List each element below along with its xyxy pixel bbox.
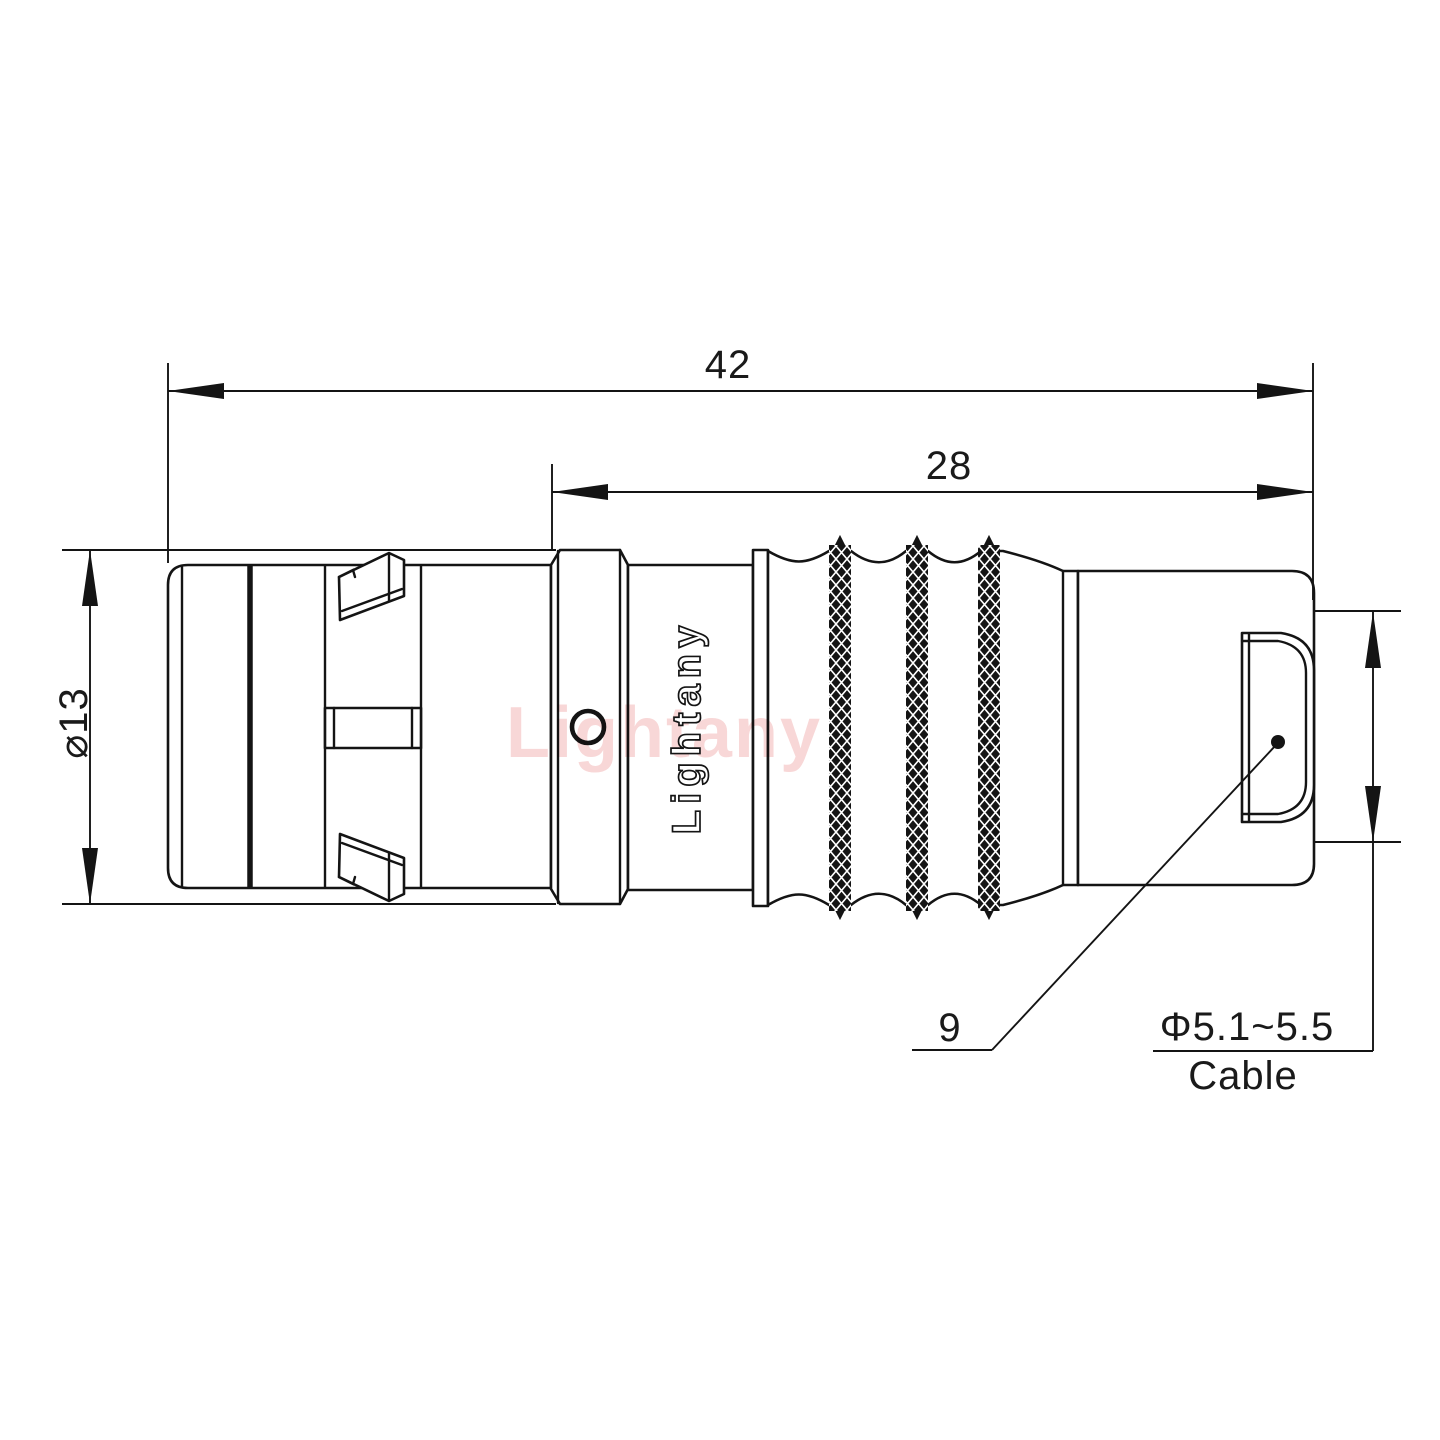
knurl-band [906, 545, 928, 911]
dim-value-9: 9 [938, 1006, 961, 1050]
arrowhead-top [82, 550, 98, 606]
dim-value-dia13: ⌀13 [52, 687, 96, 759]
arrowhead-right [1257, 383, 1313, 399]
knurl-band [829, 545, 851, 911]
arrowhead-left [552, 484, 608, 500]
body-logo: Lightany [665, 620, 709, 835]
knurl-band [978, 545, 1000, 911]
watermark: Lightany [506, 693, 822, 773]
latch-center-band [325, 708, 421, 748]
dim-value-28: 28 [926, 444, 973, 488]
cable-nut-section [1078, 571, 1314, 885]
dim-value-cable-dia: Φ5.1~5.5 [1160, 1005, 1334, 1049]
arrowhead-left [168, 383, 224, 399]
knurl-ring-1 [829, 536, 851, 919]
knurl-ring-2 [906, 536, 928, 919]
arrowhead-top [1365, 612, 1381, 668]
drawing-canvas: Lightany Lightany 42 28 ⌀13 Φ5.1~5.5 [0, 0, 1440, 1440]
dim-value-42: 42 [705, 343, 752, 387]
cable-label: Cable [1188, 1054, 1298, 1098]
dimension-overall-length: 42 [168, 343, 1313, 600]
leader-dot [1271, 735, 1285, 749]
dimension-rear-length: 28 [552, 444, 1313, 549]
knurl-ring-3 [978, 536, 1000, 919]
arrowhead-right [1257, 484, 1313, 500]
technical-drawing: Lightany Lightany 42 28 ⌀13 Φ5.1~5.5 [0, 0, 1440, 1440]
arrowhead-bottom [82, 848, 98, 904]
arrowhead-bottom [1365, 786, 1381, 842]
